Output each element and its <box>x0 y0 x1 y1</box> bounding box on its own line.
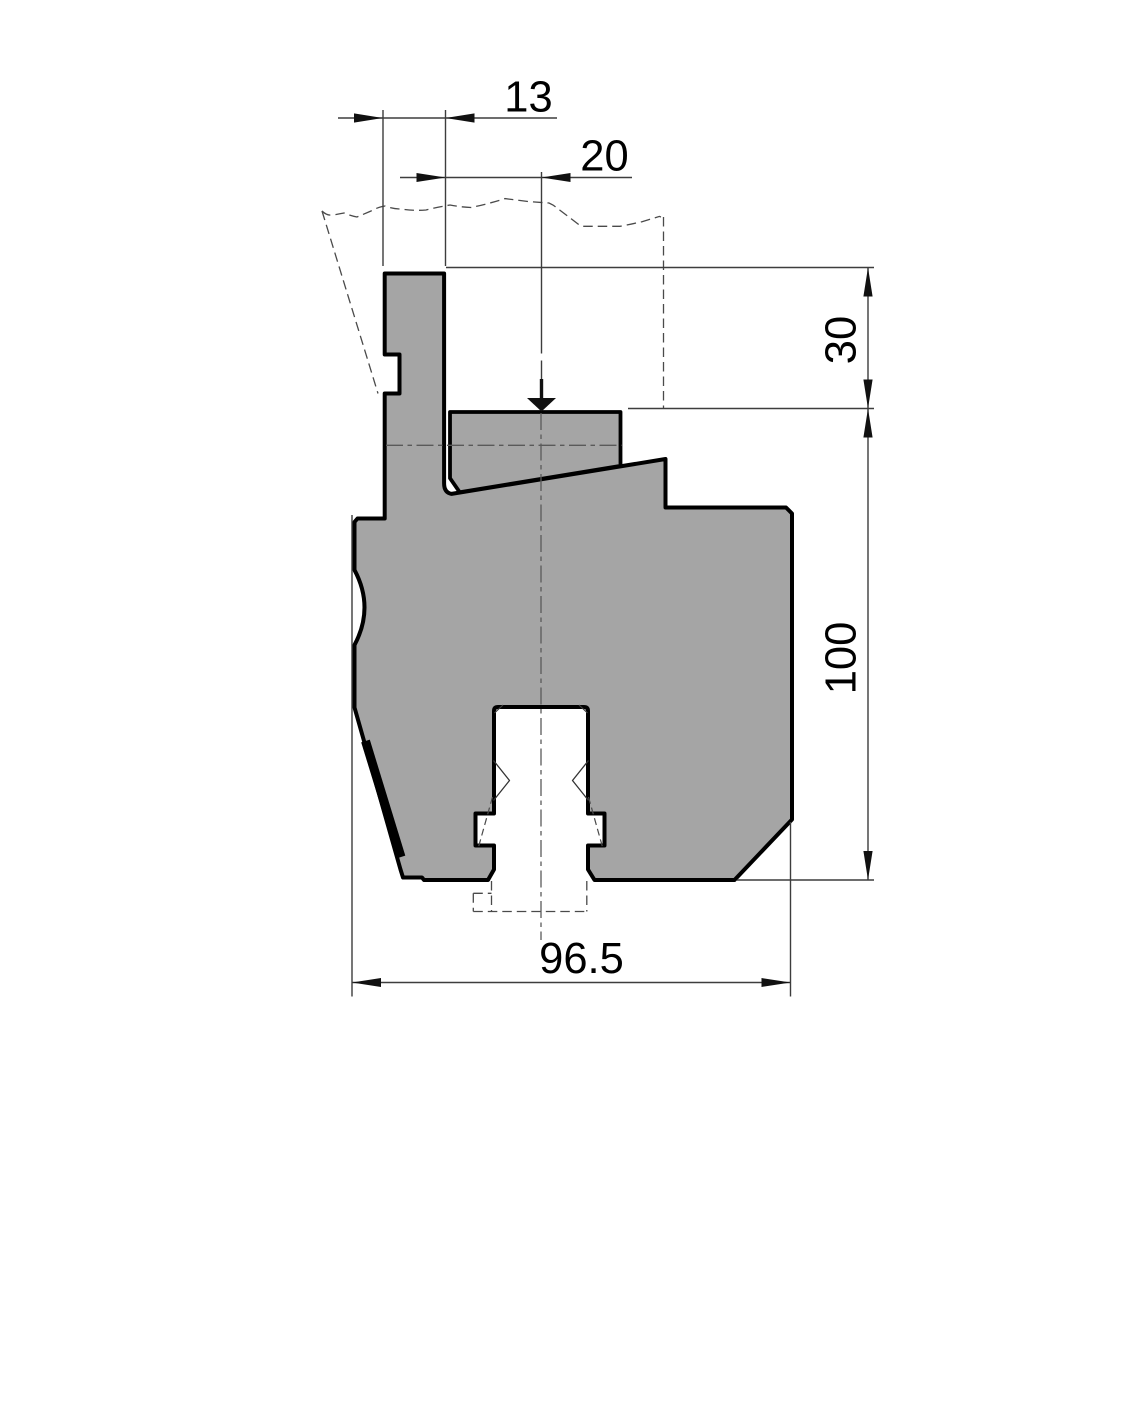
svg-text:96.5: 96.5 <box>539 935 624 983</box>
svg-text:100: 100 <box>818 622 866 695</box>
svg-text:20: 20 <box>580 133 628 181</box>
svg-text:13: 13 <box>504 74 552 122</box>
svg-text:30: 30 <box>818 316 866 364</box>
